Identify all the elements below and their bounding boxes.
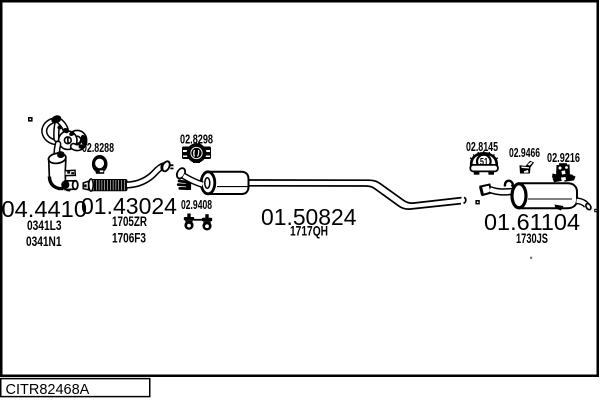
svg-text:02.8298: 02.8298 xyxy=(180,132,213,147)
svg-text:1730JS: 1730JS xyxy=(516,231,548,246)
svg-text:51: 51 xyxy=(480,157,489,168)
svg-text:02.9466: 02.9466 xyxy=(509,145,540,160)
svg-text:02.9408: 02.9408 xyxy=(181,197,212,212)
svg-text:02.9216: 02.9216 xyxy=(547,150,580,165)
svg-text:CITR82468A: CITR82468A xyxy=(6,382,90,398)
svg-text:0341N1: 0341N1 xyxy=(26,234,62,249)
svg-text:1706F3: 1706F3 xyxy=(112,231,146,246)
svg-text:1717QH: 1717QH xyxy=(290,223,328,238)
svg-text:1705ZR: 1705ZR xyxy=(112,214,147,229)
svg-text:02.8145: 02.8145 xyxy=(466,139,498,154)
svg-text:0341L3: 0341L3 xyxy=(27,218,62,233)
svg-text:02.8288: 02.8288 xyxy=(82,140,114,155)
